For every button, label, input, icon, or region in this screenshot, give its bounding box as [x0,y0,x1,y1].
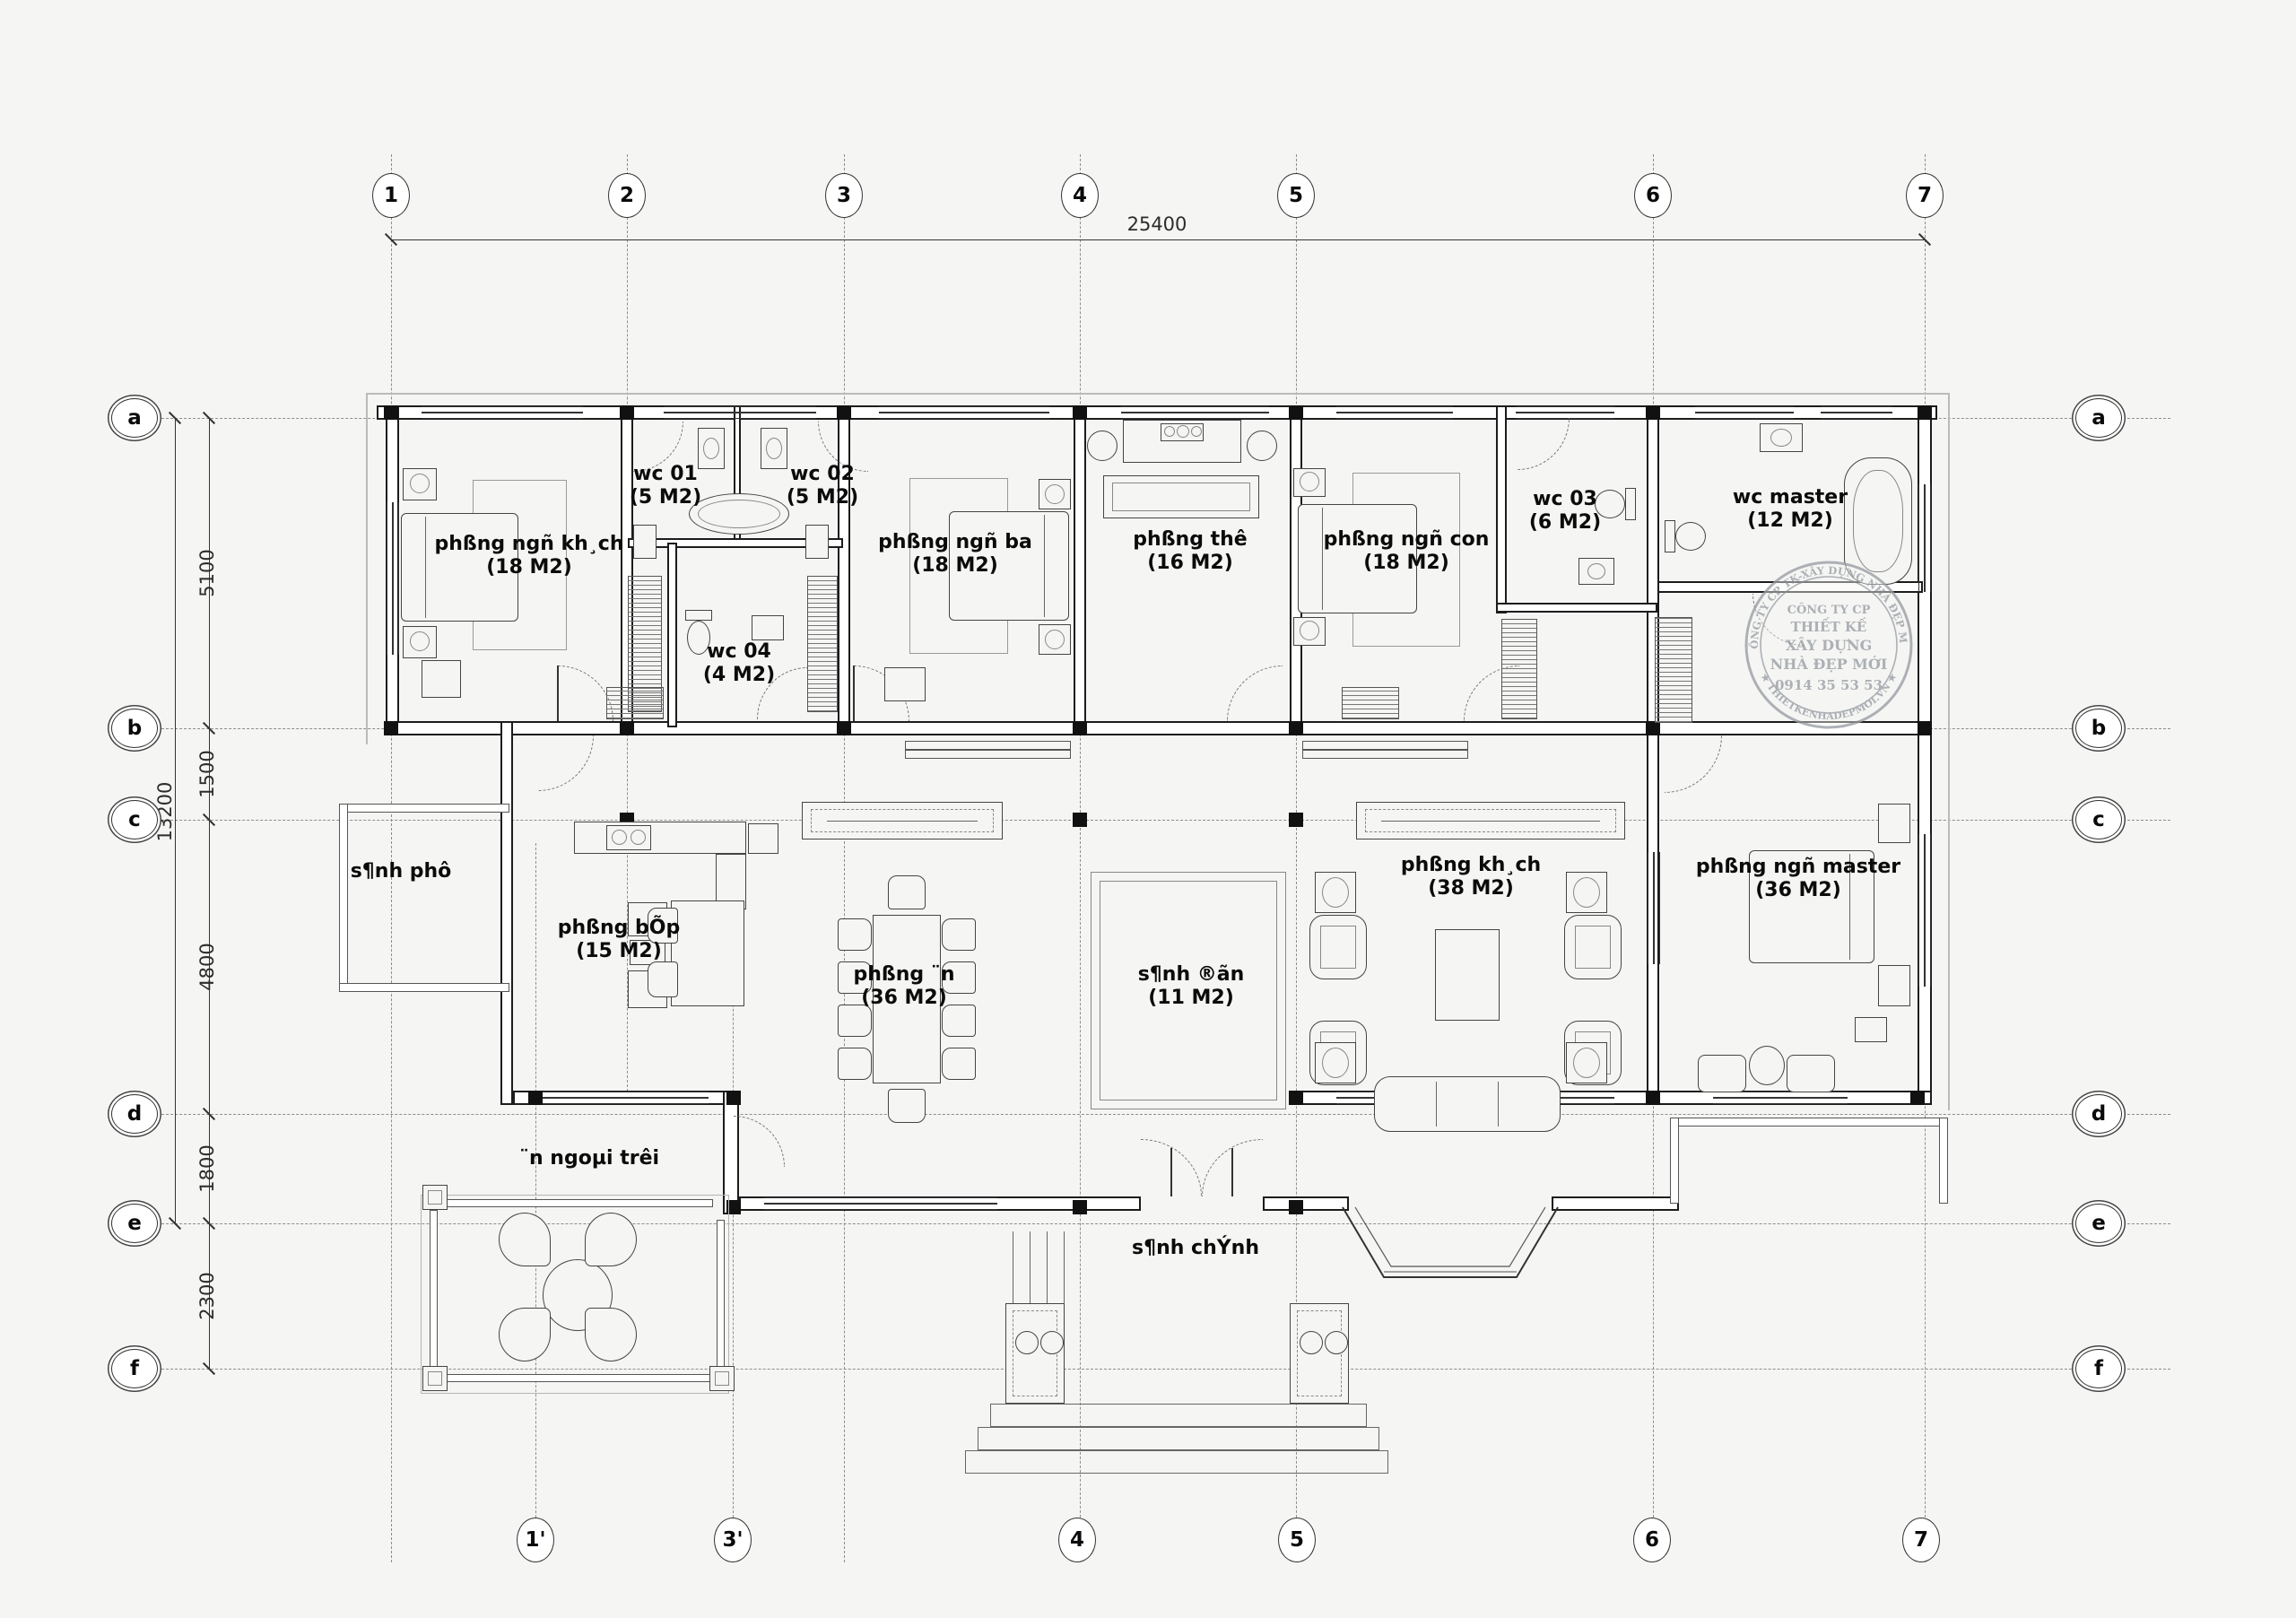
grid-bubble-right-a: a [2075,398,2122,438]
room-label-wc01: wc 01 (5 M2) [630,463,701,509]
room-label-an: phßng ¨n (36 M2) [854,963,955,1010]
grid-bubble-bottom-3p: 3' [714,1518,752,1562]
wall-south-door-right [1263,1196,1349,1211]
stamp-phone: 0914 35 53 53 [1775,677,1883,693]
partition-wc04-west [667,543,677,727]
grid-bubble-bottom-6: 6 [1633,1518,1671,1562]
partition-grid6 [1647,405,1659,1105]
dim-1800: 1800 [196,1144,218,1192]
column [1073,1200,1087,1214]
window [1695,406,1794,419]
partition-grid4 [1074,405,1086,728]
floor-plan-canvas: 25400 13200 5100 1500 4800 1800 2300 1 2… [0,0,2296,1618]
column [1073,721,1087,735]
grid-bubble-right-f: f [2075,1349,2122,1388]
room-label-wc04: wc 04 (4 M2) [703,640,775,687]
grid-bubble-bottom-4: 4 [1058,1518,1096,1562]
grid-bubble-bottom-7: 7 [1902,1518,1940,1562]
grid-line-3 [844,154,845,1562]
sink-bowl [1770,429,1792,447]
window [1121,406,1269,419]
room-name: phßng ngñ kh¸ch [434,533,623,556]
grid-bubble-top-7: 7 [1906,173,1944,218]
column [1073,405,1087,420]
round-stool [1087,431,1118,461]
round-stool [1247,431,1277,461]
window [1648,852,1660,964]
wardrobe-hatch [1501,619,1537,719]
entry-step [965,1450,1388,1474]
veranda-ledge [1670,1118,1679,1204]
dining-chair [888,875,926,909]
pergola-beam [446,1374,713,1382]
door-arc-terrace [734,1116,785,1167]
room-area: (15 M2) [558,940,681,963]
toilet-tank [1625,488,1636,520]
door-arc-wc03 [1518,418,1570,470]
window [1918,484,1931,592]
room-label-khach: phßng kh¸ch (38 M2) [1401,854,1541,900]
wall-corridor-b [386,721,1932,735]
grid-bubble-left-a: a [111,398,158,438]
wall-sanhphu-south [339,983,509,992]
column [837,405,851,420]
room-area: (18 M2) [1324,552,1490,575]
window [1713,1092,1848,1104]
grid-bubble-right-c: c [2075,800,2122,839]
grid-bubble-right-b: b [2075,709,2122,748]
bed-pillow-line [1044,515,1045,617]
lamp-icon [1322,877,1349,908]
column [620,721,634,735]
column [1289,1091,1303,1105]
window [387,502,399,655]
grid-bubble-left-c: c [111,800,158,839]
roof-outline [366,393,1950,395]
nightstand [1878,804,1910,843]
grid-bubble-top-6: 6 [1634,173,1672,218]
column [1918,405,1932,420]
sliding-wardrobe [905,741,1071,759]
kitchen-counter [574,822,746,854]
pergola-beam [446,1199,713,1207]
wall-kitchen-west [500,721,513,1105]
window [1336,406,1453,419]
outdoor-chair [499,1308,551,1361]
dimension-line-top [391,239,1925,240]
room-name: s¶nh chÝnh [1132,1237,1259,1260]
column [1289,405,1303,420]
column [1289,721,1303,735]
sliding-wardrobe [1302,741,1468,759]
room-name: s¶nh ®ãn [1138,963,1245,987]
lamp-icon [1300,472,1319,491]
room-name: wc 02 [787,463,858,486]
room-label-bep: phßng bÕp (15 M2) [558,917,681,963]
bed-pillow-line [425,517,426,618]
side-steps [1013,1231,1013,1309]
grid-bubble-top-5: 5 [1277,173,1315,218]
wall-sanhphu-north [339,804,509,813]
room-name: wc master [1733,486,1848,509]
porch-column-base [1015,1331,1039,1354]
room-label-an-ngoai: ¨n ngoµi trêi [519,1147,659,1170]
pergola-post-inner [428,1190,442,1205]
room-name: phßng kh¸ch [1401,854,1541,877]
cabinet-hatch [606,687,664,719]
stool [884,667,926,701]
cabinet-hatch [1342,687,1399,719]
armchair-cushion [1575,926,1611,969]
grid-bubble-left-d: d [111,1094,158,1134]
sink-bowl [1587,563,1605,579]
wall-sanhphu-west [339,804,348,992]
room-label-bed1: phßng ngñ kh¸ch (18 M2) [434,533,623,579]
room-area: (4 M2) [703,664,775,687]
grid-bubble-bottom-1p: 1' [517,1518,554,1562]
sofa-cushion-line [1436,1082,1437,1127]
sink-bowl [766,438,782,459]
dining-chair [838,918,872,951]
column [1289,1200,1303,1214]
door-leaf [853,665,855,721]
room-name: phßng ngñ ba [878,531,1032,554]
sink [752,615,784,640]
room-name: wc 01 [630,463,701,486]
lamp-icon [1573,877,1600,908]
pergola-beam [717,1220,725,1369]
lamp-icon [1045,630,1065,649]
dim-4800: 4800 [196,943,218,990]
veranda-ledge [1674,1118,1948,1127]
stamp-line4: NHÀ ĐẸP MỚI [1770,655,1888,673]
kitchen-table [671,900,744,1006]
nightstand [1878,965,1910,1006]
vanity-hatch [807,576,838,712]
room-area: (38 M2) [1401,877,1541,900]
side-steps [1064,1231,1065,1309]
window [1821,406,1892,419]
coffee-table [1435,929,1500,1021]
lamp-icon [410,474,430,493]
sofa [1374,1076,1561,1132]
sideboard-line [1381,821,1600,822]
room-name: phßng ngñ master [1696,856,1900,879]
grid-bubble-right-e: e [2075,1204,2122,1243]
wardrobe-hatch [1655,617,1692,723]
stamp-line1: CÔNG TY CP [1787,602,1871,617]
porch-column-base [1325,1331,1348,1354]
grid-bubble-top-4: 4 [1061,173,1099,218]
room-label-tho: phßng thê (16 M2) [1133,528,1247,575]
toilet-tank [1665,520,1675,552]
room-label-bed-ba: phßng ngñ ba (18 M2) [878,531,1032,578]
room-label-wc-master: wc master (12 M2) [1733,486,1848,533]
pergola-post-inner [428,1371,442,1386]
room-name: ¨n ngoµi trêi [519,1147,659,1170]
armchair-cushion [1320,926,1356,969]
dining-chair [942,918,976,951]
window [422,406,583,419]
grid-line-1 [391,154,392,1562]
room-area: (36 M2) [854,987,955,1010]
armchair [1698,1055,1746,1092]
partition-wc03-west [1496,405,1507,613]
censer [1177,425,1189,438]
grid-bubble-left-e: e [111,1204,158,1243]
wall-south-east [1552,1196,1679,1211]
room-area: (16 M2) [1133,552,1247,575]
stamp-line3: XÂY DỰNG [1786,636,1873,654]
company-stamp: CÔNG TY CP TK-XÂY DỰNG NHÀ ĐẸP MỚI ★ THI… [1742,558,1917,733]
lamp-icon [410,631,430,651]
shower-seat [633,525,657,559]
window [1918,834,1931,987]
room-name: wc 04 [703,640,775,664]
porch-column-base [1300,1331,1323,1354]
room-label-sanh-don: s¶nh ®ãn (11 M2) [1138,963,1245,1010]
armchair [1787,1055,1835,1092]
room-area: (12 M2) [1733,509,1848,533]
dining-chair [942,1048,976,1080]
wall-wc03-south [1496,603,1657,613]
toilet-tank [685,610,712,621]
shower-seat [805,525,829,559]
column [1918,721,1932,735]
outdoor-chair [585,1308,637,1361]
dim-2300: 2300 [196,1272,218,1319]
entry-step [990,1404,1367,1427]
side-steps [1030,1231,1031,1309]
grid-bubble-top-1: 1 [372,173,410,218]
room-name: phßng ¨n [854,963,955,987]
dim-13200: 13200 [154,782,176,842]
entry-step [978,1427,1379,1450]
room-name: phßng bÕp [558,917,681,940]
door-leaf [557,665,559,721]
kitchen-chair [648,961,678,997]
toilet-bowl [1675,522,1706,551]
sideboard-line [827,821,978,822]
window [664,406,816,419]
window [538,1092,709,1104]
dining-chair [888,1089,926,1123]
door-arc-tho [1227,665,1283,721]
room-label-sanh-phu: s¶nh phô [351,860,452,883]
censer [1191,426,1202,437]
room-label-master: phßng ngñ master (36 M2) [1696,856,1900,902]
column [1646,1091,1660,1105]
veranda-ledge [1939,1118,1948,1204]
grid-line-e [108,1223,2170,1224]
porch-column-base [1040,1331,1064,1354]
column [1646,405,1660,420]
grid-bubble-bottom-5: 5 [1278,1518,1316,1562]
column [1910,1091,1925,1105]
grid-bubble-right-d: d [2075,1094,2122,1134]
fridge [748,823,778,854]
roof-outline [366,393,368,744]
stamp-line2: THIẾT KẾ [1791,617,1867,635]
side-steps [1047,1231,1048,1309]
grid-line-c [108,820,2170,821]
column [726,1091,741,1105]
ottoman [1855,1017,1887,1042]
room-name: phßng thê [1133,528,1247,552]
room-area: (18 M2) [878,554,1032,578]
room-area: (11 M2) [1138,987,1245,1010]
door-arc-master [1665,735,1722,793]
dim-total-width: 25400 [1127,213,1187,235]
door-leaf [1231,1148,1233,1196]
column [837,721,851,735]
bathtub-inner [1853,470,1903,572]
bathtub-inner [698,500,780,528]
stool [422,660,461,698]
room-name: wc 03 [1529,488,1601,511]
lamp-icon [1045,484,1065,504]
dim-5100: 5100 [196,549,218,596]
door-arc-sanhphu [538,735,594,791]
grid-bubble-left-f: f [111,1349,158,1388]
room-label-wc03: wc 03 (6 M2) [1529,488,1601,535]
pergola-post-inner [715,1371,729,1386]
pergola-beam [430,1210,438,1370]
lamp-icon [1300,621,1319,640]
roof-outline [1948,393,1950,1110]
column [1646,721,1660,735]
lamp-icon [1573,1048,1600,1078]
column [528,1091,543,1105]
room-area: (6 M2) [1529,511,1601,535]
column [384,721,398,735]
room-label-bed-con: phßng ngñ con (18 M2) [1324,528,1490,575]
column [620,405,634,420]
dining-chair [838,1048,872,1080]
column [1289,813,1303,827]
window [764,1197,997,1210]
dim-1500: 1500 [196,750,218,797]
window [879,406,1049,419]
window [1516,406,1614,419]
grid-bubble-top-3: 3 [825,173,863,218]
censer [1164,426,1175,437]
burner [631,830,646,845]
column [384,405,398,420]
sink-bowl [703,438,719,459]
room-area: (18 M2) [434,556,623,579]
room-area: (36 M2) [1696,879,1900,902]
room-label-wc02: wc 02 (5 M2) [787,463,858,509]
column [1073,813,1087,827]
room-area: (5 M2) [630,486,701,509]
grid-line-4 [1080,154,1081,1562]
door-arc-bed1 [558,665,613,721]
room-area: (5 M2) [787,486,858,509]
lamp-icon [1322,1048,1349,1078]
room-name: s¶nh phô [351,860,452,883]
grid-bubble-left-b: b [111,709,158,748]
burner [612,830,627,845]
worship-table-inner [1112,483,1250,511]
door-leaf [1170,1148,1172,1196]
outdoor-chair [499,1213,551,1266]
side-table [1749,1046,1785,1085]
grid-bubble-top-2: 2 [608,173,646,218]
room-label-sanh-chinh: s¶nh chÝnh [1132,1237,1259,1260]
room-name: phßng ngñ con [1324,528,1490,552]
grid-line-d [108,1114,2170,1115]
grid-line-f [108,1369,2170,1370]
outdoor-chair [585,1213,637,1266]
bay-window [1339,1205,1561,1313]
sofa-cushion-line [1498,1082,1499,1127]
